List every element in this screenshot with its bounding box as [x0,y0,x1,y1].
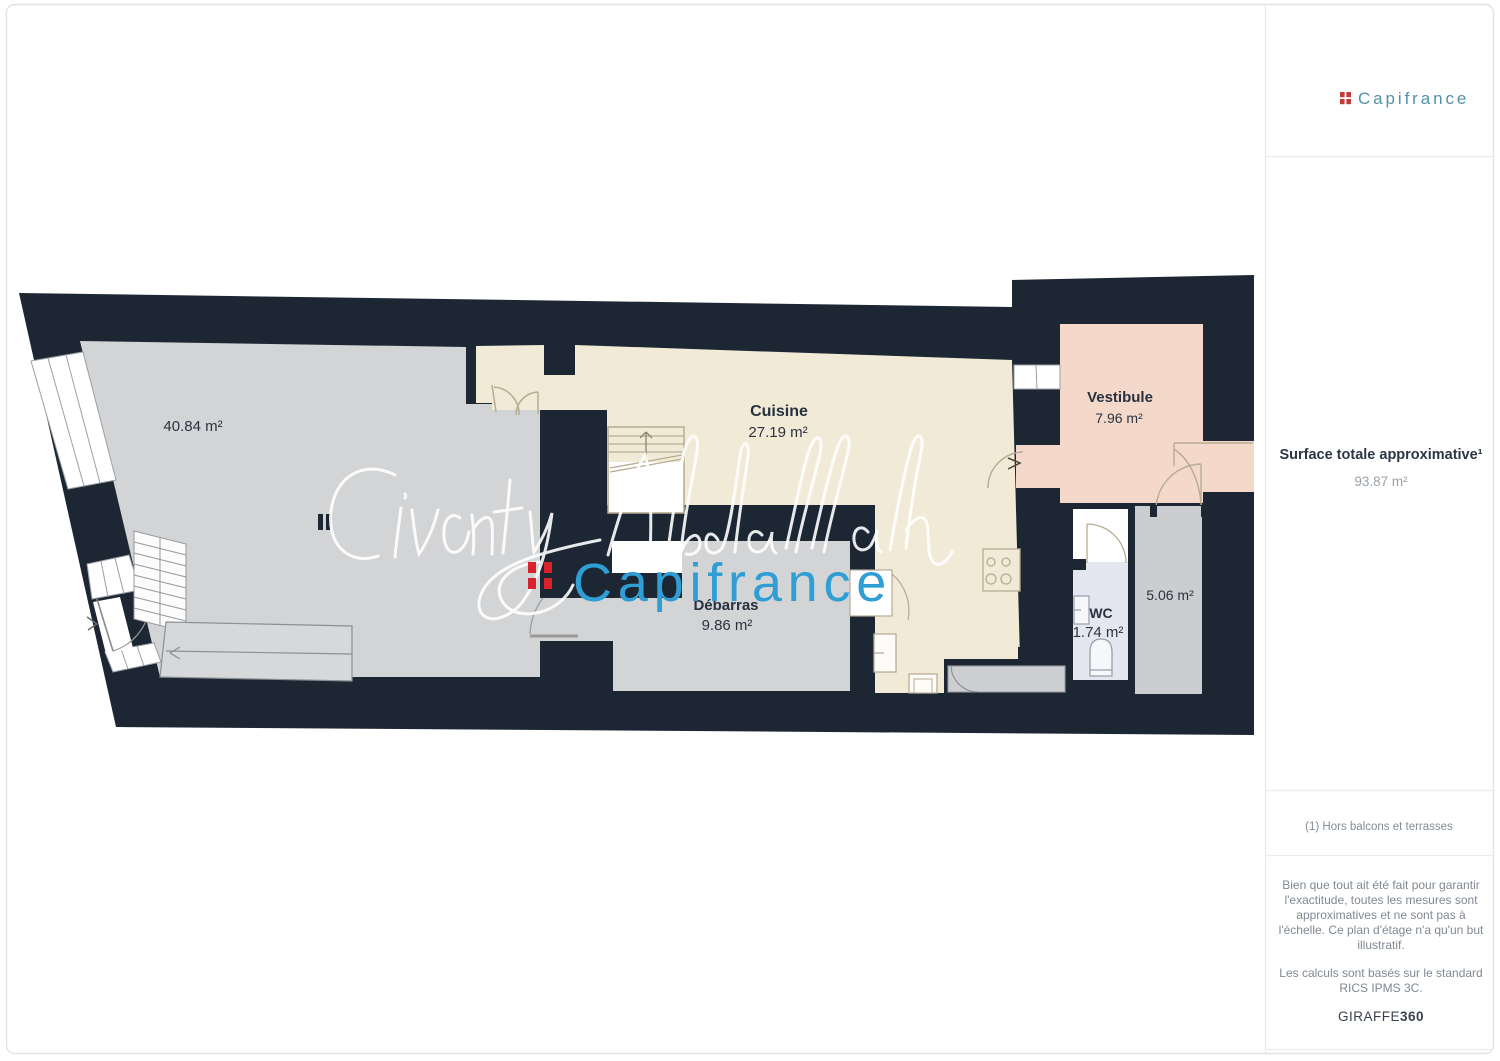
svg-text:(1) Hors balcons et terrasses: (1) Hors balcons et terrasses [1305,821,1453,833]
svg-text:l'exactitude, toutes les mesur: l'exactitude, toutes les mesures sont [1284,893,1478,907]
svg-text:40.84 m²: 40.84 m² [163,418,222,435]
svg-text:93.87 m²: 93.87 m² [1354,474,1408,489]
svg-text:WC: WC [1089,605,1112,621]
svg-text:Vestibule: Vestibule [1087,389,1153,406]
svg-text:7.96 m²: 7.96 m² [1095,410,1143,426]
svg-text:Capifrance: Capifrance [573,553,892,613]
svg-text:Surface totale approximative¹: Surface totale approximative¹ [1279,447,1482,463]
svg-text:9.86 m²: 9.86 m² [702,617,753,634]
svg-text:approximatives et ne sont pas: approximatives et ne sont pas à [1296,908,1466,922]
svg-text:Les calculs sont basés sur le: Les calculs sont basés sur le standard [1279,966,1482,980]
svg-text:l'échelle. Ce plan d'étage n'a: l'échelle. Ce plan d'étage n'a qu'un but [1279,923,1484,937]
svg-text:27.19 m²: 27.19 m² [748,424,807,441]
svg-text:1.74 m²: 1.74 m² [1073,624,1124,641]
svg-text:RICS IPMS 3C.: RICS IPMS 3C. [1339,981,1422,995]
svg-text:Cuisine: Cuisine [750,403,808,420]
svg-text:Capifrance: Capifrance [1358,89,1469,108]
svg-text:GIRAFFE360: GIRAFFE360 [1338,1009,1424,1024]
svg-text:5.06 m²: 5.06 m² [1146,587,1194,603]
svg-text:illustratif.: illustratif. [1357,938,1404,952]
svg-text:Bien que tout ait été fait pou: Bien que tout ait été fait pour garantir [1282,878,1479,892]
